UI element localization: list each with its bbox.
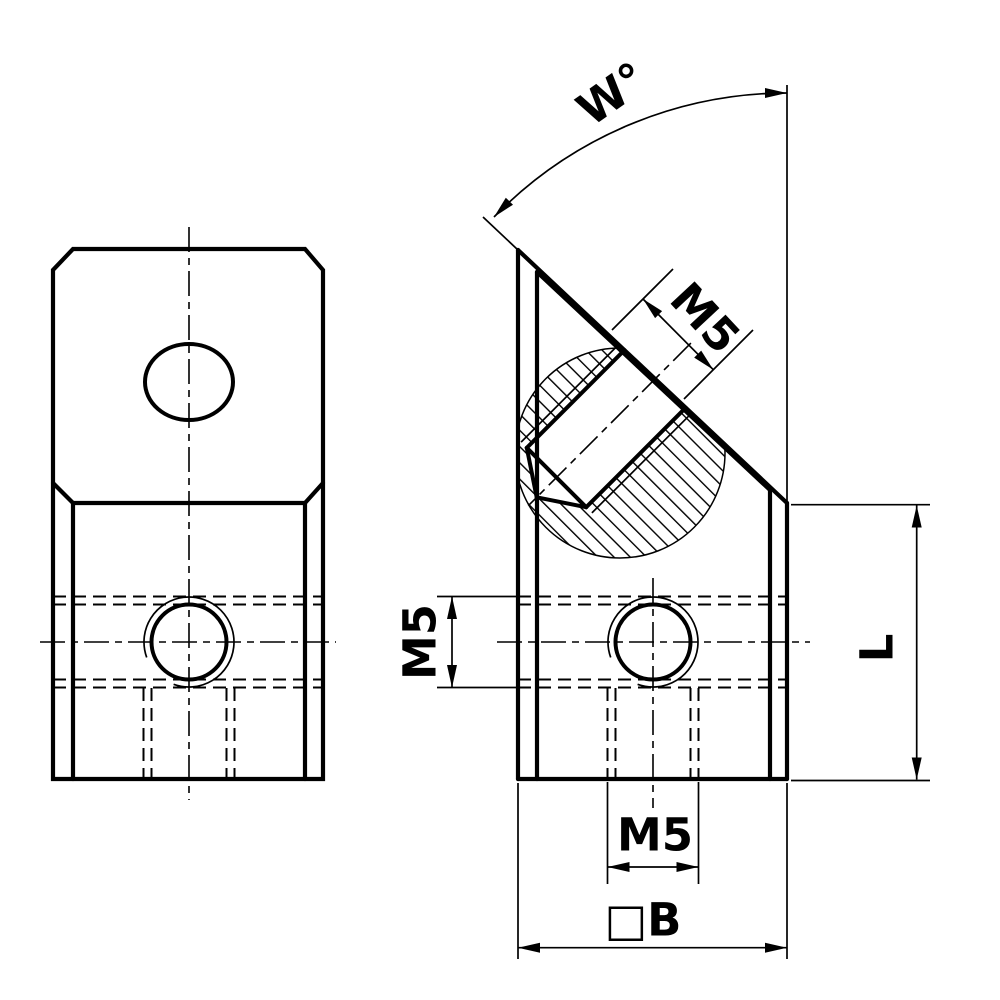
length-dimension-label: L xyxy=(851,634,904,663)
arrowhead xyxy=(447,665,457,688)
angle-dimension-label: W° xyxy=(567,52,656,137)
front-outline xyxy=(53,249,323,779)
front-view xyxy=(40,227,336,800)
front-chamfer-left xyxy=(53,483,73,503)
angle-extension-face xyxy=(483,217,518,250)
arrowhead xyxy=(518,943,540,953)
arrowhead xyxy=(912,758,922,780)
arrowhead xyxy=(608,862,630,872)
thread-side-label: M5 xyxy=(394,604,447,680)
arrowhead xyxy=(447,597,457,620)
front-chamfer-right xyxy=(305,483,323,503)
dimension-thread-bottom: M5 xyxy=(608,782,699,884)
thread-bottom-label: M5 xyxy=(617,809,693,862)
technical-drawing-canvas: W° M5 M5 M5 □B xyxy=(0,0,1000,1000)
arrowhead xyxy=(912,506,922,528)
angle-arc xyxy=(494,93,787,217)
arrowhead xyxy=(677,862,699,872)
side-view xyxy=(497,250,810,808)
thread-angled-label: M5 xyxy=(660,272,751,364)
arrowhead xyxy=(765,943,787,953)
dimension-length: L xyxy=(791,505,930,781)
angle-bracket-drawing: W° M5 M5 M5 □B xyxy=(0,0,1000,1000)
arrowhead xyxy=(765,88,787,98)
width-dimension-label: □B xyxy=(605,894,682,947)
